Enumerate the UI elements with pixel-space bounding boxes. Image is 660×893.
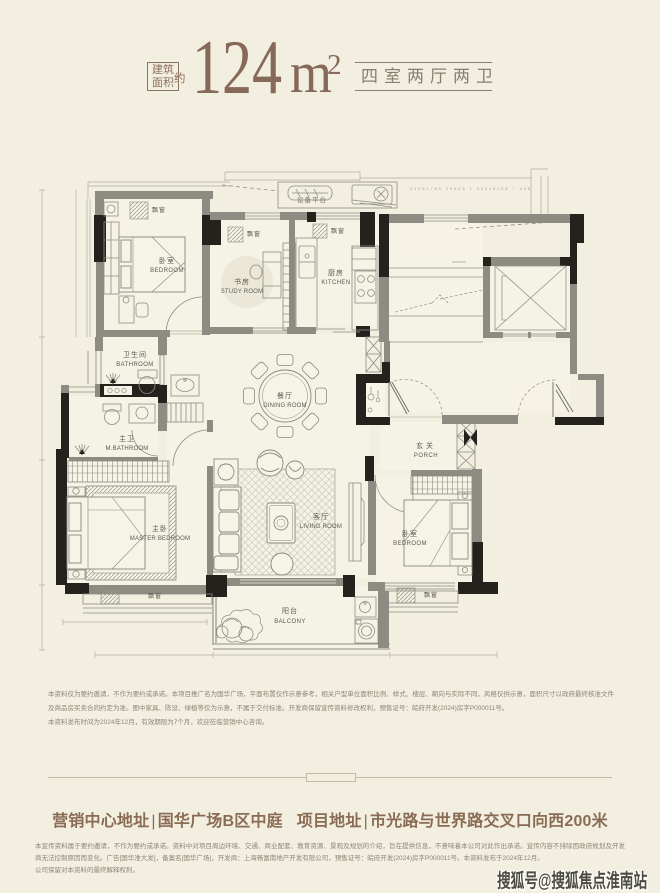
svg-text:BALCONY: BALCONY — [274, 619, 305, 625]
svg-text:飘窗: 飘窗 — [247, 230, 261, 238]
svg-text:厨房: 厨房 — [328, 268, 344, 277]
svg-text:书房: 书房 — [234, 277, 250, 286]
svg-text:卧室: 卧室 — [159, 256, 175, 265]
svg-text:设备平台: 设备平台 — [297, 195, 327, 204]
svg-text:主卫: 主卫 — [119, 434, 135, 443]
svg-text:STUDY ROOM: STUDY ROOM — [221, 289, 264, 295]
svg-text:飘窗: 飘窗 — [331, 227, 345, 235]
svg-text:M.BATHROOM: M.BATHROOM — [106, 446, 149, 452]
svg-text:客厅: 客厅 — [313, 512, 329, 521]
svg-text:玄关: 玄关 — [416, 441, 436, 450]
svg-text:31051780 15003 1 05318108 7 40: 31051780 15003 1 05318108 7 408 — [410, 187, 530, 191]
svg-text:卫生间: 卫生间 — [123, 350, 147, 359]
svg-text:KITCHEN: KITCHEN — [321, 280, 350, 286]
svg-text:餐厅: 餐厅 — [277, 391, 293, 400]
svg-text:飘窗: 飘窗 — [148, 592, 162, 600]
svg-text:飘窗: 飘窗 — [424, 591, 438, 599]
svg-text:DINING ROOM: DINING ROOM — [263, 403, 307, 409]
svg-text:主卧: 主卧 — [152, 524, 168, 533]
svg-text:BEDROOM: BEDROOM — [393, 541, 427, 547]
svg-text:BATHROOM: BATHROOM — [116, 362, 153, 368]
svg-text:LIVING ROOM: LIVING ROOM — [300, 524, 342, 530]
svg-text:阳台: 阳台 — [282, 606, 298, 615]
svg-text:飘窗: 飘窗 — [152, 206, 166, 214]
svg-text:MASTER BEDROOM: MASTER BEDROOM — [130, 536, 190, 542]
svg-text:卧室: 卧室 — [402, 529, 418, 538]
svg-text:PORCH: PORCH — [414, 453, 438, 459]
svg-text:BEDROOM: BEDROOM — [150, 268, 184, 274]
